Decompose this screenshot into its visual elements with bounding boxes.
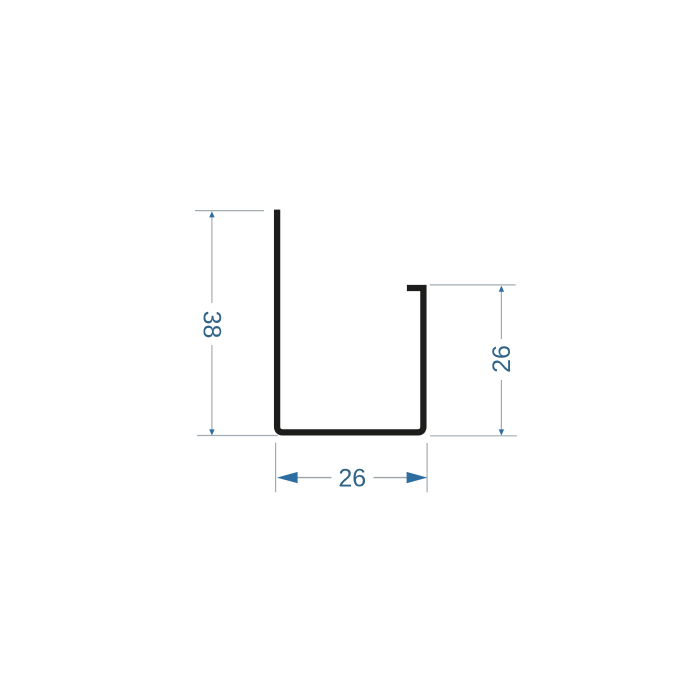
svg-text:26: 26: [338, 465, 366, 493]
svg-text:26: 26: [488, 345, 516, 373]
svg-text:38: 38: [198, 311, 226, 339]
